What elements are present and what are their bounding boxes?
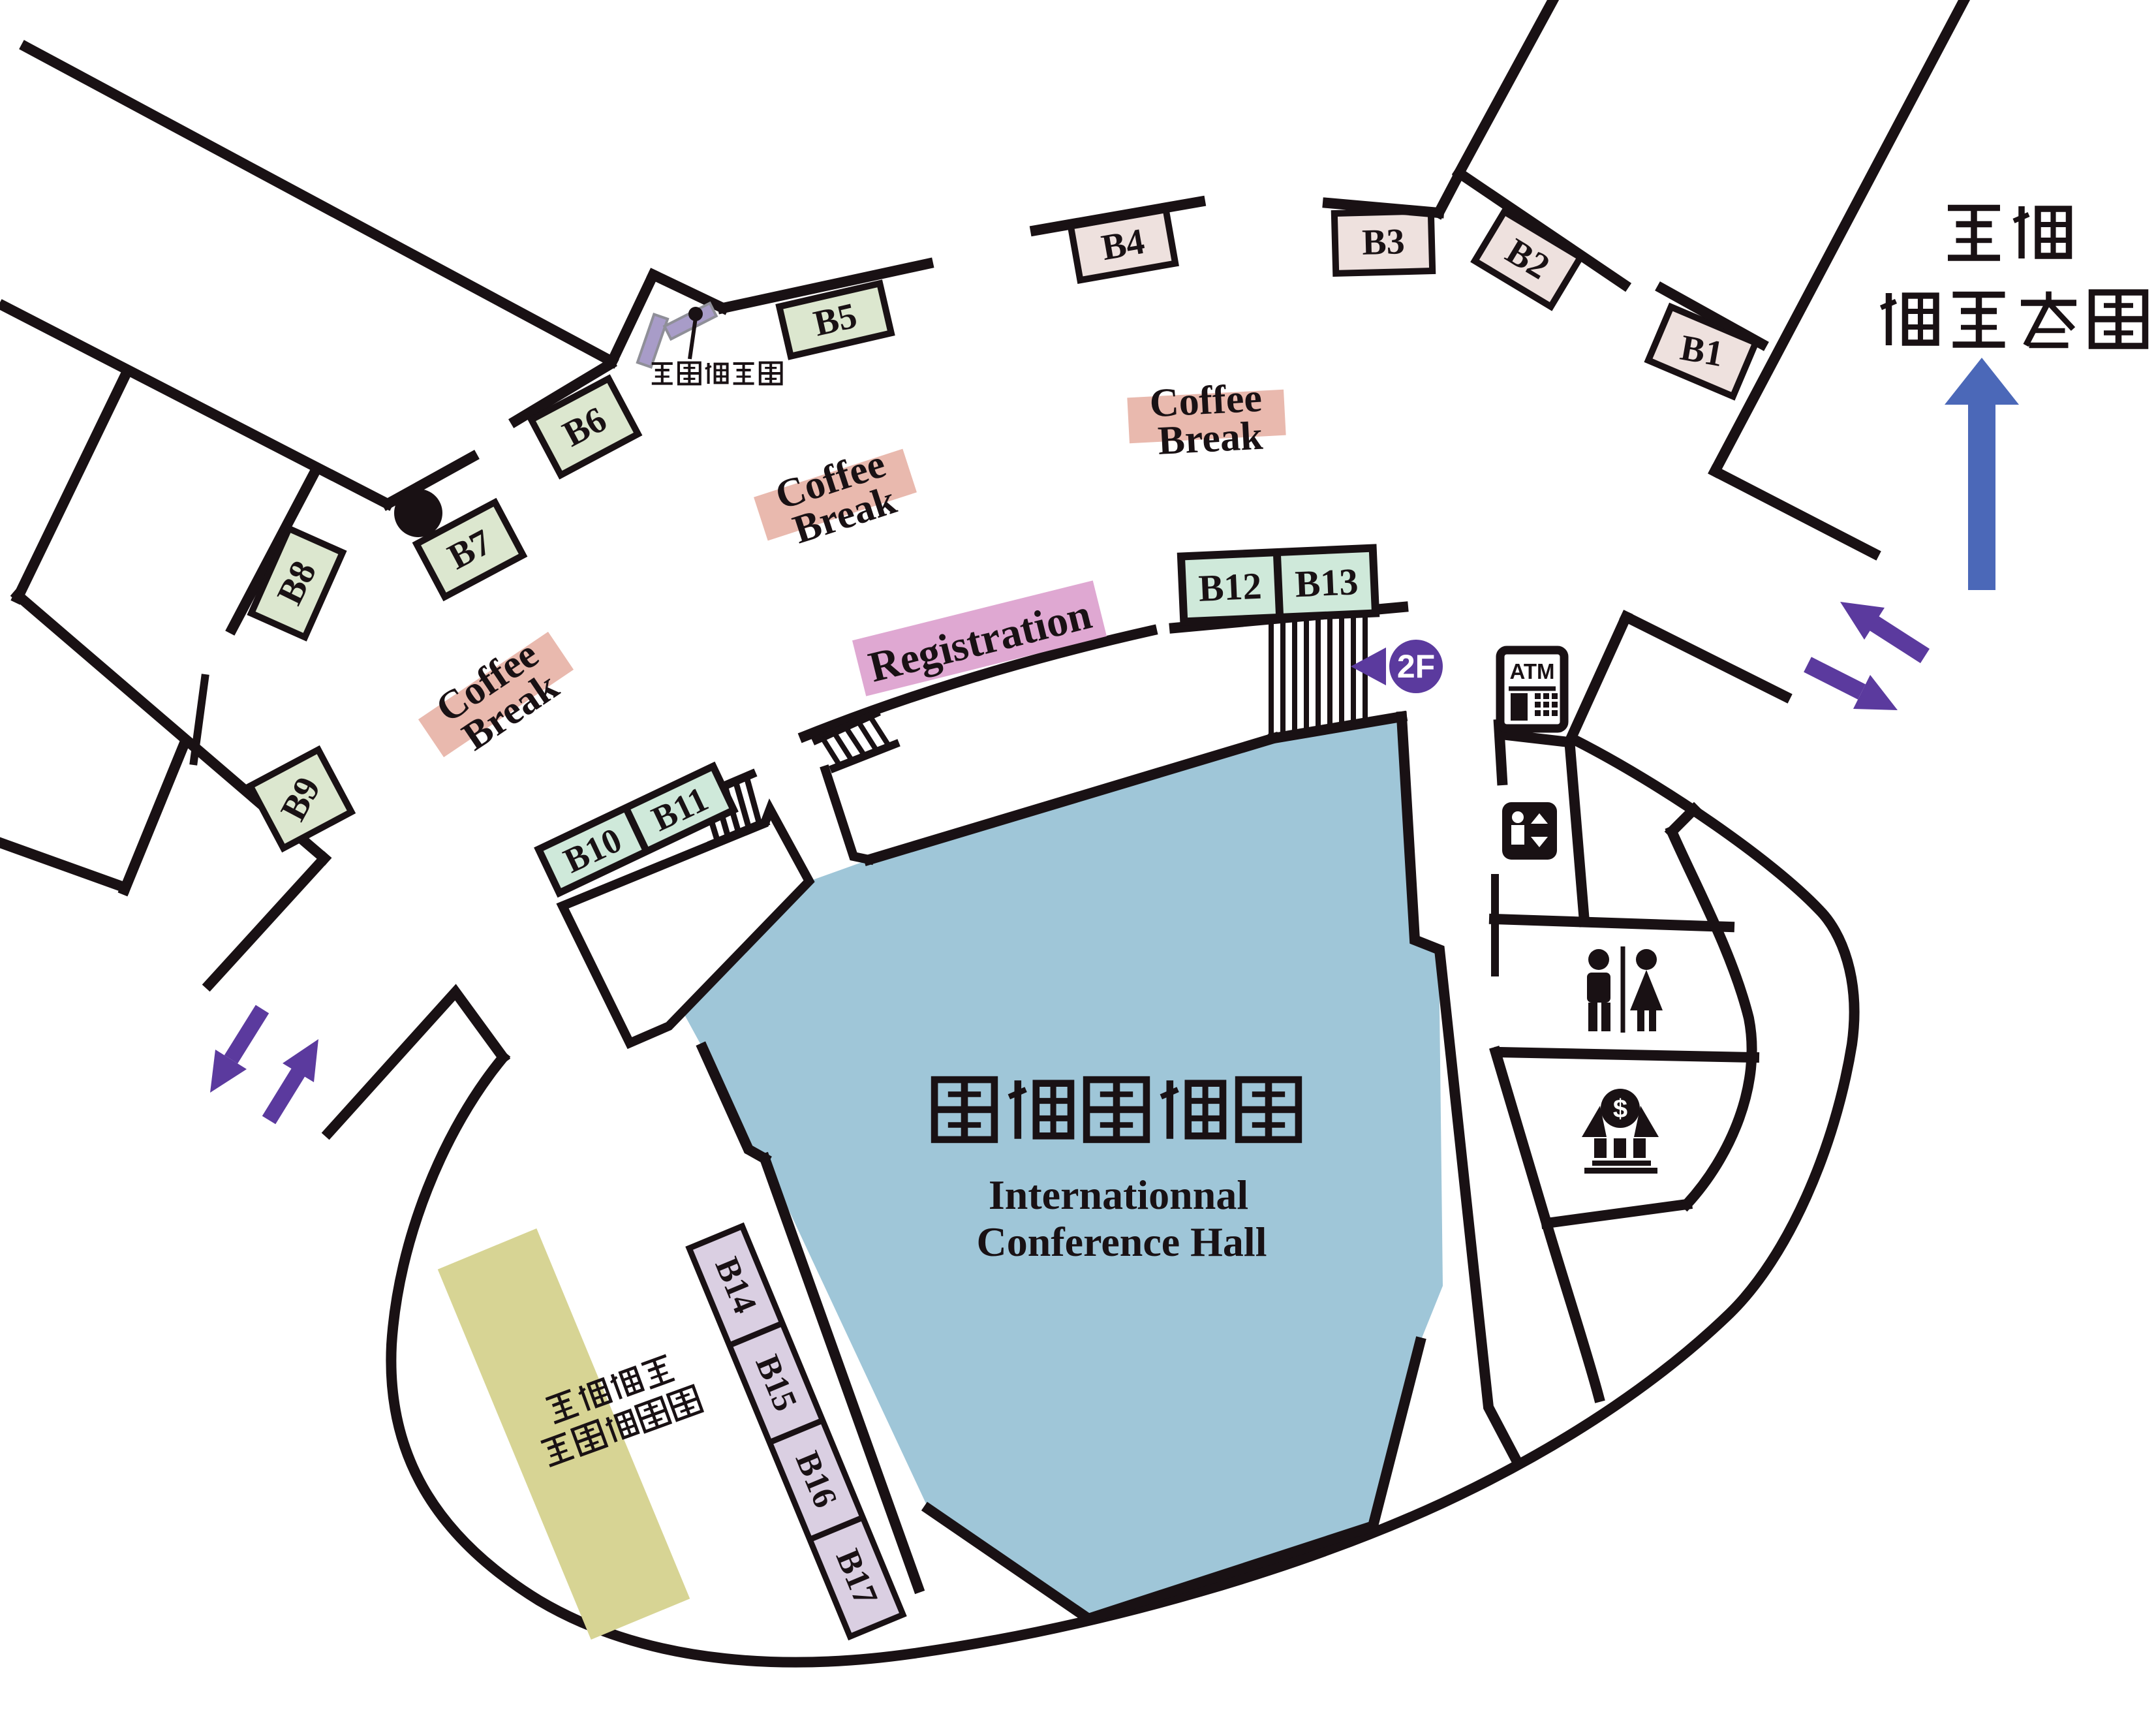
svg-text:Conference Hall: Conference Hall [977, 1219, 1267, 1265]
svg-text:$: $ [1613, 1095, 1627, 1123]
svg-text:2F: 2F [1397, 648, 1435, 685]
svg-text:B4: B4 [1098, 221, 1147, 268]
svg-text:Break: Break [1157, 414, 1265, 463]
svg-text:Internationnal: Internationnal [989, 1172, 1248, 1218]
svg-text:ATM: ATM [1509, 659, 1554, 683]
svg-text:B13: B13 [1294, 560, 1359, 605]
svg-text:B3: B3 [1362, 221, 1406, 263]
svg-text:B1: B1 [1677, 328, 1726, 375]
svg-text:B12: B12 [1197, 565, 1262, 610]
